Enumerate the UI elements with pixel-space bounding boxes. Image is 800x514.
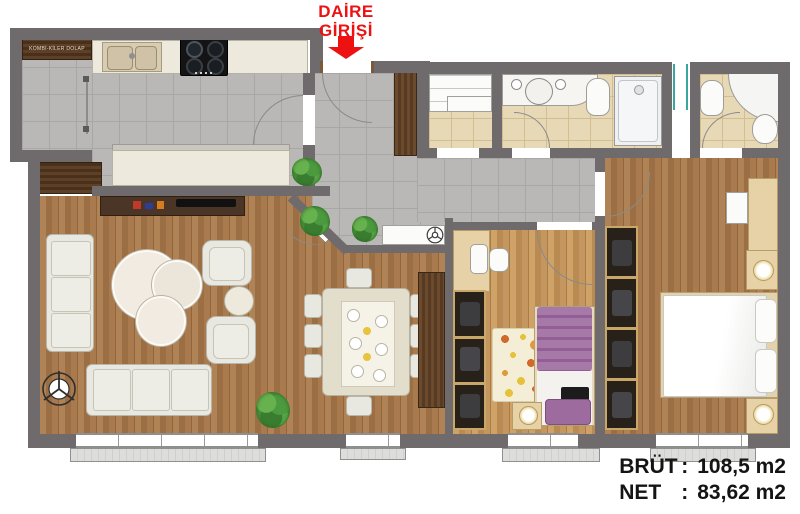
pillow [755,349,777,393]
clothes [460,394,480,418]
bathroom2-door-gap [512,148,550,158]
pantry-cabinet-label: KOMBİ-KİLER DOLAP [29,46,85,52]
clothes [612,341,632,367]
clothes [460,302,480,326]
decor-item [145,203,153,209]
armchair-seat [213,324,249,359]
entrance-arrow-icon [328,47,364,59]
cooktop-knobs [195,72,213,74]
window-glass [673,64,675,110]
master-bed [660,292,778,398]
dining-chair [304,294,322,318]
decor-item [157,201,164,209]
kids-desk-chair [470,244,488,274]
corridor-floor [417,158,597,222]
ceiling-light-icon [426,226,444,244]
sofa-cushion [51,313,91,348]
wall [10,150,92,162]
ensuite-door-gap [700,148,742,158]
wall [492,62,502,158]
dining-window-sill [340,448,406,460]
shower-drain-icon [634,85,644,95]
net-value: 83,62 m2 [697,480,786,506]
kids-lamp-icon [519,406,538,425]
wall [690,62,700,158]
floor-plan: KOMBİ-KİLER DOLAP [0,0,800,514]
wall [778,62,790,448]
kids-bed [534,306,595,426]
decor-item [363,327,371,335]
toilet-icon [700,80,724,116]
kitchen-island [112,150,290,186]
area-row-brut: BRÜT : 108,5 m2 [619,454,786,480]
wardrobe-shelf [607,327,636,330]
net-colon: : [681,480,688,506]
entrance-label-line1: DAİRE [286,2,406,21]
kids-window-sill [502,448,600,462]
bathroom1-door-gap [437,148,479,158]
brut-label: BRÜT [619,454,681,480]
master-door-gap [595,172,605,216]
entrance-door-frame [371,61,374,73]
clothes [460,347,480,371]
sofa-three-seat-left [46,234,94,352]
dining-cabinet [418,272,445,408]
kids-bed-bench [545,399,591,425]
kitchen-door-gap [303,95,315,145]
clothes [612,392,632,418]
wall [10,28,323,40]
sink-bowl [135,46,157,70]
burner-icon [207,41,224,58]
net-label: NET [619,480,681,506]
sofa-cushion [93,369,131,411]
rug-circle [136,296,186,346]
plate-icon [347,309,360,322]
faucet-icon [511,79,522,90]
master-bed-duvet [663,295,767,397]
dining-table [322,288,410,396]
sofa-three-seat-bottom [86,364,212,416]
wall [10,28,22,162]
entrance-door-gap [322,61,372,73]
brut-colon: : [681,454,688,480]
wardrobe-shelf [607,276,636,279]
armchair-seat [209,247,245,281]
living-room-window-sill [70,448,266,462]
wall [417,62,429,158]
ensuite-sink-icon [752,114,778,144]
kids-door-gap [537,222,592,230]
tv-icon [176,199,236,207]
pantry-door-hinge [83,126,89,132]
plant-icon [292,158,322,186]
wall [28,150,40,448]
master-lamp-icon [753,404,774,425]
plant-icon [300,206,330,236]
sink-basin-icon [525,78,553,105]
dining-window [346,433,400,448]
window-glass [686,64,688,110]
wardrobe-shelf [455,336,484,339]
armchair [202,240,252,286]
wall [417,62,790,74]
entrance-label: DAİRE GİRİŞİ [286,2,406,40]
plant-icon [352,216,378,242]
entrance-door-frame [320,61,323,73]
kids-chair [489,248,509,272]
shower-tray [614,76,662,146]
faucet-icon [555,79,566,90]
kids-bed-blanket [537,307,592,371]
faucet-icon [129,53,135,59]
master-lamp-icon [753,260,774,281]
side-table [224,286,254,316]
tv-unit [100,196,245,216]
burner-icon [186,41,203,58]
area-row-net: NET : 83,62 m2 [619,480,786,506]
dining-chair [346,268,372,288]
kitchen-sink [102,42,162,72]
wall [662,62,672,158]
dining-chair [304,354,322,378]
master-window [656,433,748,448]
area-summary: BRÜT : 108,5 m2 NET : 83,62 m2 [619,454,786,506]
toilet-icon [586,78,610,116]
kids-wardrobe [453,290,486,430]
dining-chair [346,396,372,416]
dining-chair [304,324,322,348]
kids-window [508,433,578,448]
plate-icon [375,343,388,356]
plate-icon [373,369,386,382]
decor-item [363,353,371,361]
cooktop [180,36,228,76]
bathroom2-vanity [502,74,598,106]
master-wardrobe [605,226,638,430]
plate-icon [351,365,364,378]
decor-item [133,201,141,209]
wardrobe-shelf [455,382,484,385]
sofa-cushion [51,241,91,276]
pantry-door-hinge [83,76,89,82]
pantry-cabinet: KOMBİ-KİLER DOLAP [22,38,92,60]
plate-icon [375,315,388,328]
sofa-cushion [51,277,91,312]
bathroom1-washer [447,96,492,112]
living-room-window [76,433,258,448]
armchair [206,316,256,364]
brut-value: 108,5 m2 [697,454,786,480]
sofa-cushion [171,369,209,411]
master-tv [726,192,748,224]
sofa-cushion [132,369,170,411]
plate-icon [349,337,362,350]
entrance-arrow-icon [338,36,354,47]
clothes [612,290,632,316]
plant-icon [256,392,290,428]
pillow [755,299,777,343]
floor-lamp-icon [40,370,78,408]
clothes [612,240,632,266]
hall-wardrobe [394,72,417,156]
wall [345,245,453,253]
wardrobe-shelf [607,378,636,381]
